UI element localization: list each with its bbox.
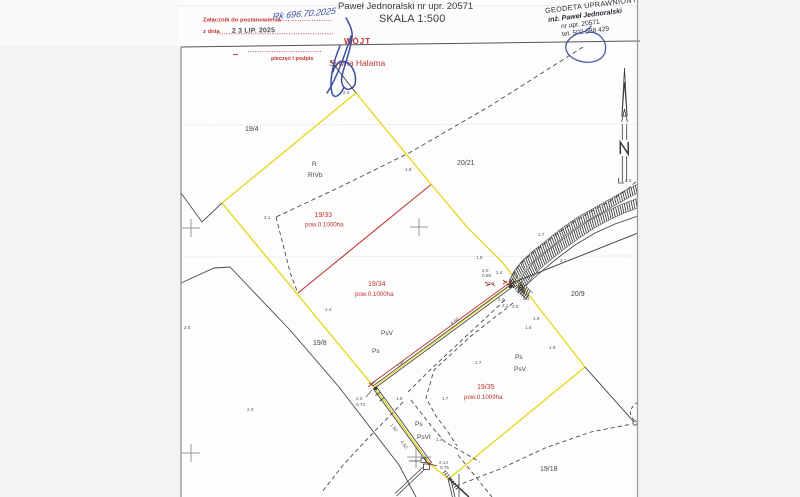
svg-text:2.0: 2.0: [498, 297, 505, 302]
svg-text:PsV: PsV: [381, 330, 394, 337]
svg-text:19/8: 19/8: [313, 340, 327, 347]
svg-text:pow.0.1000ha: pow.0.1000ha: [305, 222, 344, 229]
svg-text:19/33: 19/33: [315, 212, 333, 219]
svg-text:2 3 LIP. 2025: 2 3 LIP. 2025: [232, 27, 275, 35]
svg-text:2.1: 2.1: [502, 303, 509, 308]
svg-text:0.69: 0.69: [482, 273, 491, 278]
svg-text:pow.0.1000ha: pow.0.1000ha: [355, 291, 394, 298]
svg-text:Załącznik do postanowienia: Załącznik do postanowienia: [203, 18, 282, 24]
svg-text:19/34: 19/34: [368, 281, 386, 288]
svg-text:2.1: 2.1: [264, 215, 271, 220]
svg-text:2.0: 2.0: [247, 407, 254, 412]
svg-text:PsVI: PsVI: [417, 434, 431, 441]
svg-text:2.4: 2.4: [496, 270, 503, 275]
svg-text:2.4: 2.4: [343, 90, 350, 95]
svg-text:0.73: 0.73: [356, 402, 365, 407]
svg-text:0.76: 0.76: [440, 465, 449, 470]
svg-text:1.4: 1.4: [436, 437, 443, 442]
svg-text:1.7: 1.7: [538, 232, 545, 237]
svg-text:19/35: 19/35: [477, 384, 495, 391]
svg-text:1.7: 1.7: [475, 360, 482, 365]
svg-text:Ps: Ps: [372, 348, 380, 355]
svg-text:2.2: 2.2: [488, 281, 495, 286]
svg-text:1.8: 1.8: [525, 325, 532, 330]
svg-text:1.5: 1.5: [396, 396, 403, 401]
svg-text:2.3: 2.3: [523, 296, 530, 301]
svg-text:Paweł Jednoralski nr upr. 2057: Paweł Jednoralski nr upr. 20571: [338, 1, 473, 12]
svg-text:19/18: 19/18: [540, 466, 558, 473]
svg-text:2.0: 2.0: [625, 178, 632, 183]
svg-text:Ps: Ps: [515, 354, 523, 361]
svg-text:1.8: 1.8: [405, 167, 412, 172]
svg-text:Ps: Ps: [415, 421, 423, 428]
svg-text:1.8: 1.8: [476, 255, 483, 260]
svg-text:1.7: 1.7: [442, 396, 449, 401]
svg-text:pow.0.1009ha: pow.0.1009ha: [464, 394, 503, 401]
svg-text:R: R: [312, 161, 317, 168]
svg-text:SKALA 1:500: SKALA 1:500: [379, 13, 445, 25]
svg-text:19/4: 19/4: [245, 126, 259, 133]
svg-text:2.0: 2.0: [356, 396, 363, 401]
svg-text:RIVb: RIVb: [308, 172, 323, 179]
svg-text:20/21: 20/21: [457, 160, 475, 167]
svg-text:2.1: 2.1: [560, 258, 567, 263]
svg-text:1.8: 1.8: [549, 345, 556, 350]
svg-text:20/9: 20/9: [571, 291, 585, 298]
svg-text:PsV: PsV: [514, 366, 527, 373]
svg-text:1.9: 1.9: [533, 316, 540, 321]
svg-text:1.4: 1.4: [325, 307, 332, 312]
svg-text:pieczęć i podpis: pieczęć i podpis: [271, 56, 313, 62]
svg-text:2.5: 2.5: [184, 325, 191, 330]
svg-text:2.6: 2.6: [512, 304, 519, 309]
